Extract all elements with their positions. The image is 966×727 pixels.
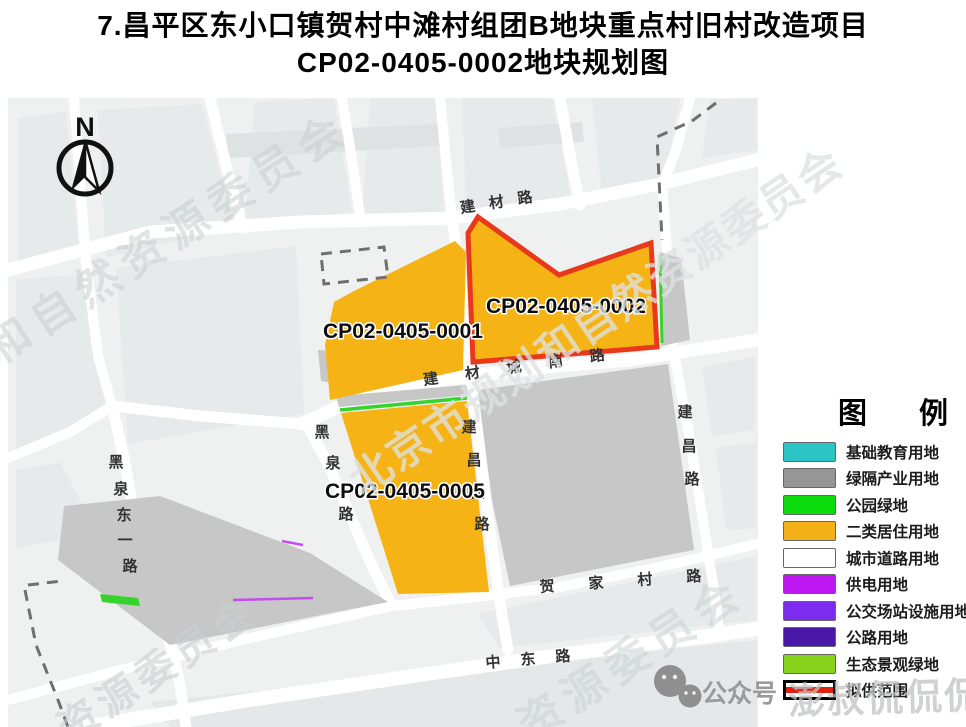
svg-text:昌: 昌: [681, 438, 696, 455]
legend-swatch-power: [783, 574, 836, 594]
legend-item-park-green: 公园绿地: [783, 494, 966, 515]
legend-swatch-eco-green: [783, 654, 836, 674]
svg-text:黑: 黑: [108, 454, 123, 471]
legend-title: 图 例: [838, 390, 966, 432]
north-label: N: [75, 112, 95, 142]
map-legend: 图 例 基础教育用地 绿隔产业用地 公园绿地 二类居住用地 城市道路用地 供电用…: [783, 390, 966, 706]
wechat-official-account-label: 公众号: [702, 674, 777, 710]
svg-text:泉: 泉: [112, 480, 129, 498]
svg-text:黑: 黑: [314, 424, 329, 441]
legend-item-transit-station: 公交场站设施用地: [783, 600, 966, 621]
svg-text:建: 建: [677, 403, 693, 421]
legend-swatch-education: [783, 442, 836, 462]
svg-text:泉: 泉: [324, 454, 341, 472]
page-title-line2: CP02-0405-0002地块规划图: [0, 45, 966, 82]
legend-item-eco-green: 生态景观绿地: [783, 653, 966, 674]
legend-item-residential: 二类居住用地: [783, 521, 966, 542]
legend-swatch-highway: [783, 627, 836, 647]
page-title-line1: 7.昌平区东小口镇贺村中滩村组团B地块重点村旧村改造项目: [0, 8, 966, 45]
parcel-0005-label: CP02-0405-0005: [325, 480, 485, 503]
legend-swatch-residential: [783, 521, 836, 541]
parcel-0002-label: CP02-0405-0002: [486, 295, 646, 318]
legend-item-urban-road: 城市道路用地: [783, 547, 966, 568]
legend-item-supply-boundary: 拟供范围: [783, 680, 966, 701]
planning-map-page: 7.昌平区东小口镇贺村中滩村组团B地块重点村旧村改造项目 CP02-0405-0…: [0, 0, 966, 727]
legend-swatch-urban-road: [783, 548, 836, 568]
legend-swatch-supply-boundary: [783, 680, 836, 700]
wechat-icon: [650, 662, 702, 712]
svg-text:昌: 昌: [466, 452, 481, 469]
legend-swatch-transit-station: [783, 601, 836, 621]
page-title: 7.昌平区东小口镇贺村中滩村组团B地块重点村旧村改造项目 CP02-0405-0…: [0, 8, 966, 82]
legend-item-industry: 绿隔产业用地: [783, 468, 966, 489]
parcel-0001-label: CP02-0405-0001: [323, 320, 483, 343]
legend-swatch-industry: [783, 468, 836, 488]
svg-text:建: 建: [461, 418, 477, 436]
svg-text:路: 路: [338, 505, 354, 523]
svg-text:路: 路: [474, 515, 490, 533]
legend-item-education: 基础教育用地: [783, 441, 966, 462]
svg-text:东: 东: [116, 506, 131, 524]
legend-swatch-park-green: [783, 495, 836, 515]
legend-item-highway: 公路用地: [783, 627, 966, 648]
svg-text:路: 路: [684, 470, 700, 488]
svg-text:路: 路: [122, 557, 138, 575]
svg-text:一: 一: [117, 532, 132, 549]
legend-item-power: 供电用地: [783, 574, 966, 595]
